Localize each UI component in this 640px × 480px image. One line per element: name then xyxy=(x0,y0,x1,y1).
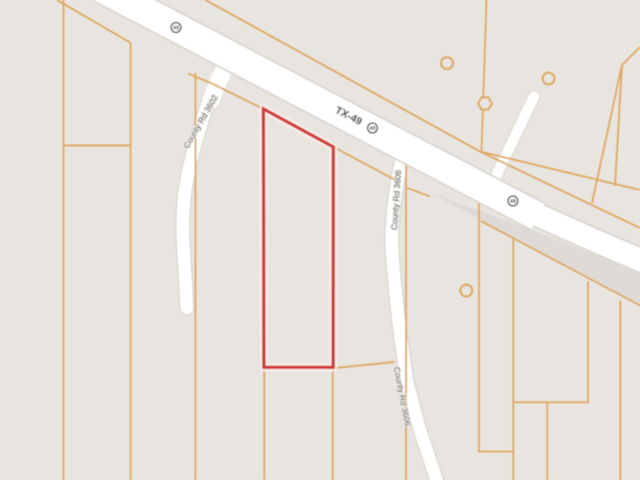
svg-text:49: 49 xyxy=(173,26,179,32)
svg-text:49: 49 xyxy=(370,126,376,132)
svg-text:49: 49 xyxy=(510,199,516,205)
